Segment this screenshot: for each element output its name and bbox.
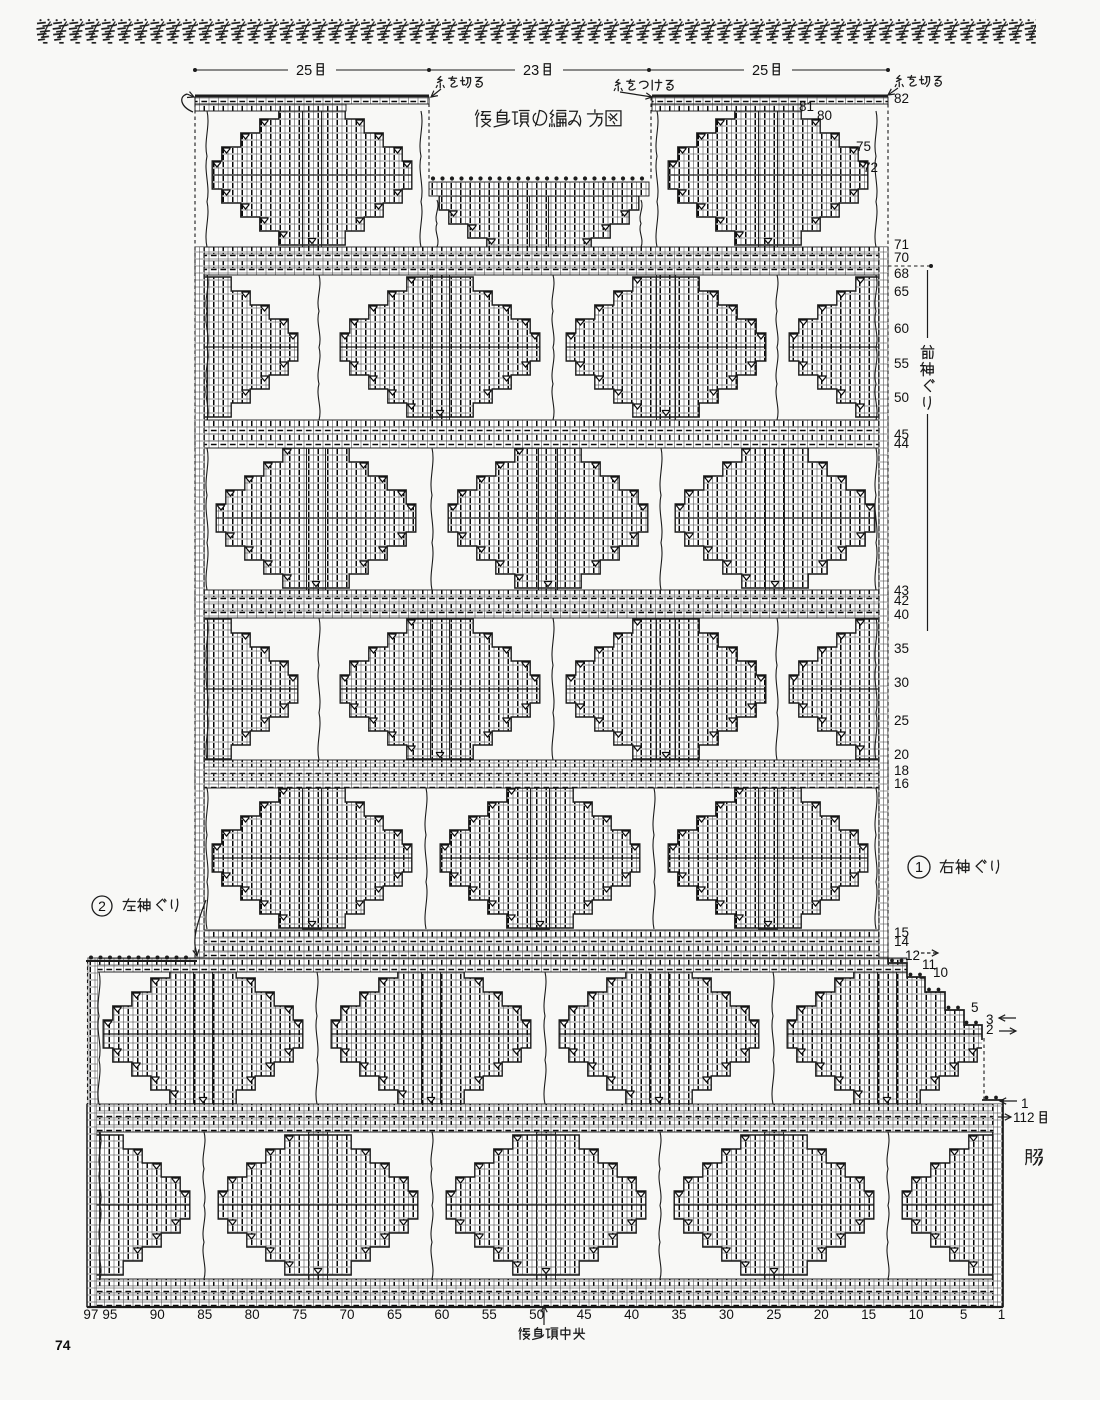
svg-text:45: 45 (577, 1307, 592, 1322)
svg-text:75: 75 (292, 1307, 307, 1322)
svg-text:85: 85 (197, 1307, 212, 1322)
svg-text:35: 35 (671, 1307, 686, 1322)
svg-text:68: 68 (894, 266, 909, 281)
svg-text:70: 70 (339, 1307, 354, 1322)
svg-text:25: 25 (894, 713, 909, 728)
svg-text:55: 55 (482, 1307, 497, 1322)
svg-text:42: 42 (894, 593, 909, 608)
svg-text:44: 44 (894, 436, 910, 451)
svg-text:25: 25 (296, 63, 312, 79)
svg-text:80: 80 (817, 108, 832, 123)
svg-text:35: 35 (894, 641, 909, 656)
svg-text:1: 1 (915, 860, 923, 876)
svg-text:30: 30 (719, 1307, 734, 1322)
svg-text:95: 95 (102, 1307, 117, 1322)
svg-text:40: 40 (624, 1307, 639, 1322)
svg-text:15: 15 (861, 1307, 876, 1322)
svg-text:10: 10 (909, 1307, 924, 1322)
svg-text:112: 112 (1013, 1110, 1035, 1125)
svg-text:65: 65 (894, 284, 909, 299)
svg-text:2: 2 (986, 1022, 994, 1037)
svg-text:81: 81 (799, 99, 814, 114)
svg-text:23: 23 (523, 63, 539, 79)
svg-text:12: 12 (905, 948, 920, 963)
svg-text:55: 55 (894, 356, 909, 371)
svg-text:5: 5 (960, 1307, 968, 1322)
svg-text:90: 90 (150, 1307, 165, 1322)
svg-text:20: 20 (894, 747, 909, 762)
svg-text:30: 30 (894, 675, 909, 690)
svg-text:20: 20 (814, 1307, 829, 1322)
svg-text:25: 25 (752, 63, 768, 79)
svg-text:82: 82 (894, 91, 909, 106)
svg-text:65: 65 (387, 1307, 402, 1322)
svg-text:80: 80 (245, 1307, 260, 1322)
svg-text:72: 72 (863, 160, 878, 175)
svg-text:1: 1 (998, 1307, 1006, 1322)
svg-text:2: 2 (98, 898, 106, 914)
svg-text:40: 40 (894, 607, 909, 622)
svg-text:16: 16 (894, 776, 909, 791)
svg-text:97: 97 (83, 1307, 98, 1322)
svg-text:5: 5 (971, 1000, 979, 1015)
svg-text:10: 10 (933, 965, 948, 980)
svg-text:1: 1 (1021, 1096, 1029, 1111)
svg-text:25: 25 (766, 1307, 781, 1322)
svg-text:14: 14 (894, 934, 910, 949)
svg-text:50: 50 (894, 390, 909, 405)
svg-text:74: 74 (55, 1337, 71, 1353)
svg-text:60: 60 (434, 1307, 449, 1322)
svg-text:75: 75 (856, 139, 871, 154)
svg-text:60: 60 (894, 321, 909, 336)
svg-text:70: 70 (894, 250, 909, 265)
